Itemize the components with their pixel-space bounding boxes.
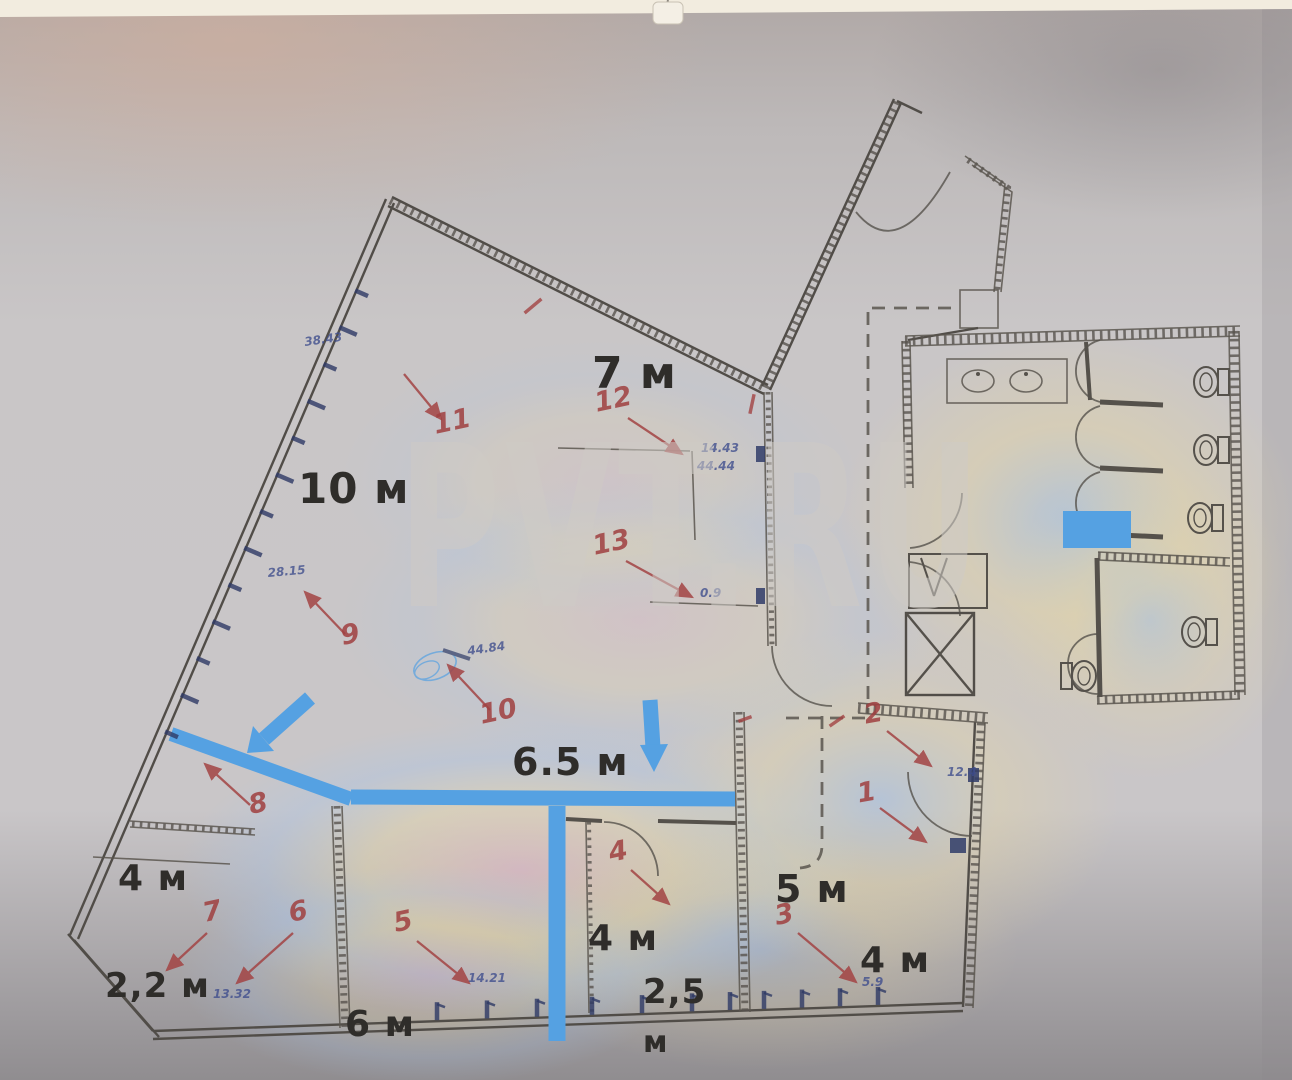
floor-plan-photo: 38.4328.1544.8414.4344.440.912.45.914.21… [0,0,1292,1080]
fixture-4 [950,838,966,853]
room-label-right-4: 4 м [860,940,930,981]
room-label-bottom-6: 6 м [345,1004,415,1045]
center-room-top-a [566,819,602,821]
room-label-center-25: 2,5 [643,972,706,1012]
room-label-hall-10: 10 м [298,464,409,513]
room-label-center-m: м [643,1025,669,1060]
room-label-left-4: 4 м [118,858,188,899]
highlight-wall-horizontal [351,797,735,799]
room-label-center-4: 4 м [588,918,658,959]
wc-partition-v [1097,558,1100,697]
sink-tap-1 [976,372,980,376]
dim-text-9: 13.32 [213,987,251,1001]
screen-photo: 38.4328.1544.8414.4344.440.912.45.914.21… [0,0,1292,1080]
sink-tap-2 [1024,372,1028,376]
room-label-left-22: 2,2 м [105,966,210,1006]
stall-partition-1 [1100,402,1163,405]
stall-partition-2 [1100,468,1163,471]
dim-text-6: 12.4 [947,765,977,779]
watermark-group: PVT.RU [398,398,986,660]
top-tab [653,2,683,24]
highlight-rect-bathroom [1063,511,1131,548]
center-room-top-b [658,821,736,823]
watermark: PVT.RU [398,398,986,660]
room-label-corridor-65: 6.5 м [512,740,629,784]
dim-text-8: 14.21 [468,971,506,985]
